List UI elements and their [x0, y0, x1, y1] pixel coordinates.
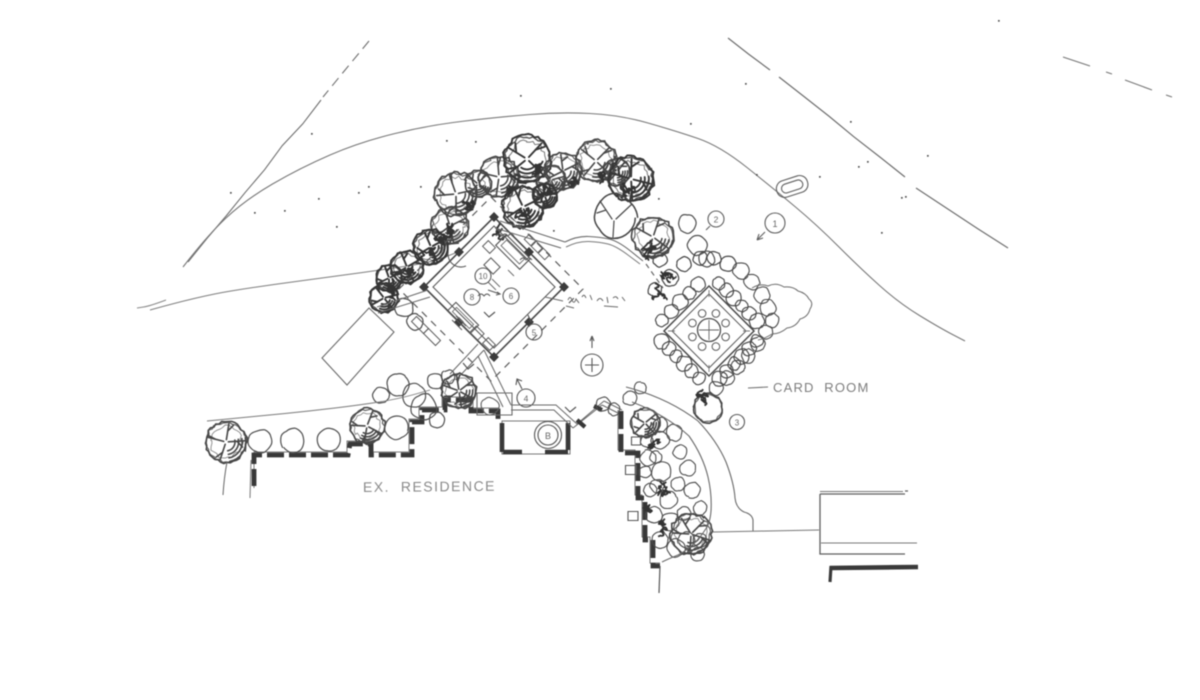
- svg-text:2: 2: [714, 215, 719, 225]
- svg-text:3: 3: [735, 419, 740, 428]
- svg-text:B: B: [545, 431, 551, 441]
- svg-text:EX. RESIDENCE: EX. RESIDENCE: [363, 478, 496, 495]
- svg-text:4: 4: [524, 394, 529, 404]
- svg-text:1: 1: [772, 219, 777, 229]
- svg-text:10: 10: [479, 272, 488, 281]
- svg-text:CARD ROOM: CARD ROOM: [773, 380, 870, 395]
- svg-text:5: 5: [532, 329, 537, 338]
- svg-text:6: 6: [509, 292, 514, 301]
- svg-text:8: 8: [470, 293, 475, 302]
